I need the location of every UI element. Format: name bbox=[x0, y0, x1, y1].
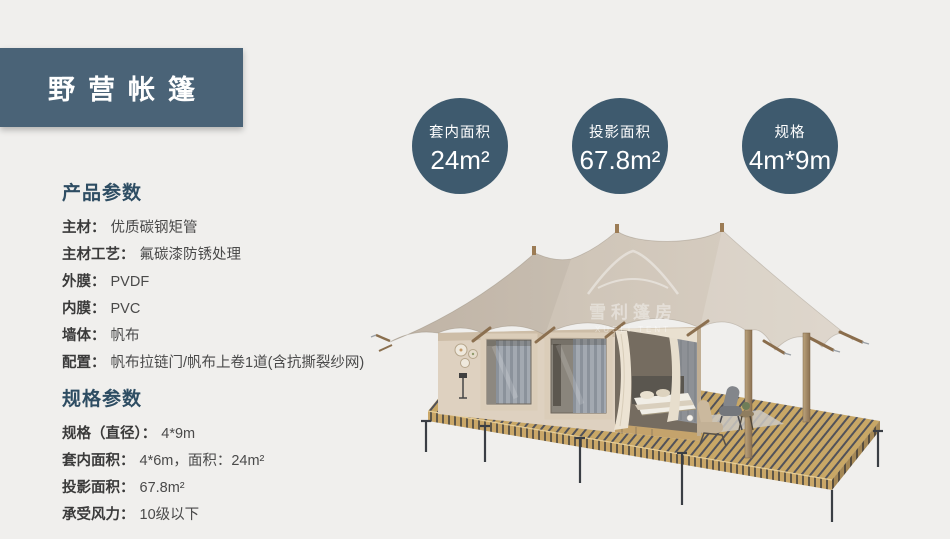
peak-tip bbox=[720, 223, 724, 232]
product-params-heading: 产品参数 bbox=[62, 178, 392, 205]
badge-projection-area: 投影面积 67.8m² bbox=[572, 98, 668, 194]
badge-value: 24m² bbox=[430, 147, 489, 173]
param-row: 主材：优质碳钢矩管 bbox=[62, 215, 392, 242]
title-banner: 野营帐篷 bbox=[0, 48, 243, 127]
param-label: 规格（直径）： bbox=[62, 426, 156, 442]
param-label: 主材工艺： bbox=[62, 247, 135, 263]
tent-product-photo: 雪利篷房 XUELI TENT bbox=[370, 194, 950, 534]
param-value: 帆布 bbox=[111, 328, 140, 344]
badge-label: 投影面积 bbox=[589, 121, 651, 142]
badge-label: 规格 bbox=[775, 121, 806, 142]
param-value: PVC bbox=[111, 301, 141, 317]
param-value: 4*9m bbox=[161, 426, 195, 442]
cabin-window-left bbox=[483, 336, 535, 408]
param-value: 67.8m² bbox=[140, 480, 185, 496]
param-label: 配置： bbox=[62, 355, 106, 371]
param-row: 外膜：PVDF bbox=[62, 269, 392, 296]
badge-inner-area: 套内面积 24m² bbox=[412, 98, 508, 194]
spec-params-section: 规格参数 规格（直径）：4*9m 套内面积：4*6m，面积：24m² 投影面积：… bbox=[62, 384, 392, 529]
param-value: PVDF bbox=[111, 274, 150, 290]
peak-tip bbox=[532, 246, 536, 255]
param-value: 优质碳钢矩管 bbox=[111, 220, 198, 236]
param-value: 4*6m，面积：24m² bbox=[140, 453, 265, 469]
param-row: 规格（直径）：4*9m bbox=[62, 421, 392, 448]
badge-label: 套内面积 bbox=[429, 121, 491, 142]
table-plant bbox=[742, 402, 750, 410]
param-label: 内膜： bbox=[62, 301, 106, 317]
param-row: 主材工艺：氟碳漆防锈处理 bbox=[62, 242, 392, 269]
param-label: 外膜： bbox=[62, 274, 106, 290]
param-value: 氟碳漆防锈处理 bbox=[140, 247, 242, 263]
param-label: 主材： bbox=[62, 220, 106, 236]
left-rigging-bars bbox=[371, 335, 392, 351]
badge-value: 4m*9m bbox=[749, 147, 831, 173]
param-row: 墙体：帆布 bbox=[62, 323, 392, 350]
open-bay bbox=[614, 328, 700, 441]
bedside-lamp bbox=[687, 415, 693, 421]
peak-tip bbox=[615, 224, 619, 233]
product-params-section: 产品参数 主材：优质碳钢矩管 主材工艺：氟碳漆防锈处理 外膜：PVDF 内膜：P… bbox=[62, 178, 392, 377]
product-sheet-page: { "title": {"text": "野营帐篷"}, "badges": [… bbox=[0, 0, 950, 534]
param-label: 承受风力： bbox=[62, 507, 135, 523]
watermark-cn-text: 雪利篷房 bbox=[589, 302, 677, 322]
badge-size: 规格 4m*9m bbox=[742, 98, 838, 194]
watermark-en-text: XUELI TENT bbox=[595, 325, 671, 334]
param-row: 内膜：PVC bbox=[62, 296, 392, 323]
param-row: 套内面积：4*6m，面积：24m² bbox=[62, 448, 392, 475]
param-value: 帆布拉链门/帆布上卷1道(含抗撕裂纱网) bbox=[111, 355, 365, 371]
spec-params-heading: 规格参数 bbox=[62, 384, 392, 411]
page-title: 野营帐篷 bbox=[48, 68, 208, 107]
param-label: 投影面积： bbox=[62, 480, 135, 496]
param-row: 投影面积：67.8m² bbox=[62, 475, 392, 502]
param-row: 承受风力：10级以下 bbox=[62, 502, 392, 529]
param-label: 套内面积： bbox=[62, 453, 135, 469]
param-label: 墙体： bbox=[62, 328, 106, 344]
badge-value: 67.8m² bbox=[580, 147, 661, 173]
tent-illustration: 雪利篷房 XUELI TENT bbox=[370, 194, 950, 534]
cabin-window-right bbox=[547, 335, 610, 417]
param-value: 10级以下 bbox=[140, 507, 200, 523]
param-row: 配置：帆布拉链门/帆布上卷1道(含抗撕裂纱网) bbox=[62, 350, 392, 377]
